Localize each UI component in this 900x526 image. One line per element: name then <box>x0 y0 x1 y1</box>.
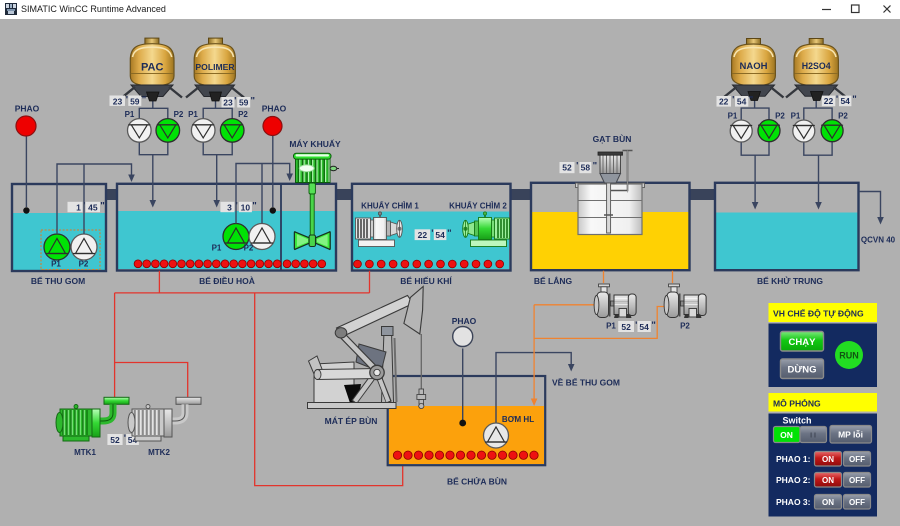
svg-text:Switch: Switch <box>782 416 811 426</box>
svg-text:CHẠY: CHẠY <box>789 337 817 348</box>
svg-text:ON: ON <box>822 498 834 507</box>
svg-text:22: 22 <box>719 97 729 107</box>
svg-text:BỂ LẮNG: BỂ LẮNG <box>534 275 573 286</box>
svg-text:": " <box>447 228 452 239</box>
svg-text:P2: P2 <box>680 322 690 331</box>
svg-text:P1: P1 <box>728 111 738 120</box>
svg-text:P1: P1 <box>212 244 222 253</box>
svg-text:": " <box>251 96 256 107</box>
svg-text:VỀ BỂ THU GOM: VỀ BỂ THU GOM <box>552 377 620 388</box>
svg-text:BỂ ĐIỀU HOÀ: BỂ ĐIỀU HOÀ <box>199 275 255 286</box>
svg-text:': ' <box>635 320 637 331</box>
svg-text:GẠT BÙN: GẠT BÙN <box>593 133 632 144</box>
svg-text:QCVN 40: QCVN 40 <box>861 236 896 245</box>
svg-text:BỂ KHỬ TRUNG: BỂ KHỬ TRUNG <box>757 275 823 286</box>
svg-text:22: 22 <box>824 96 834 106</box>
svg-text:OFF: OFF <box>849 498 865 507</box>
svg-text:PHAO: PHAO <box>262 104 287 114</box>
svg-text:I I: I I <box>810 433 816 440</box>
svg-text:59: 59 <box>130 96 140 106</box>
svg-text:': ' <box>126 94 128 105</box>
svg-text:MTK2: MTK2 <box>148 448 170 457</box>
svg-text:OFF: OFF <box>849 476 865 485</box>
svg-text:": " <box>749 95 754 106</box>
svg-text:54: 54 <box>840 96 850 106</box>
svg-text:': ' <box>836 94 838 105</box>
svg-text:': ' <box>431 228 433 239</box>
svg-text:1: 1 <box>76 203 81 213</box>
svg-text:ON: ON <box>822 455 834 464</box>
svg-text:MÁY KHUẤY: MÁY KHUẤY <box>289 139 341 149</box>
svg-text:ON: ON <box>822 476 834 485</box>
svg-text:OFF: OFF <box>849 455 865 464</box>
svg-text:P2: P2 <box>244 244 254 253</box>
svg-text:MÁT ÉP BÙN: MÁT ÉP BÙN <box>325 415 378 426</box>
svg-text:3: 3 <box>227 203 232 213</box>
svg-text:POLIMER: POLIMER <box>195 62 235 72</box>
svg-text:MÔ PHỎNG: MÔ PHỎNG <box>773 398 821 409</box>
svg-text:54: 54 <box>435 230 445 240</box>
svg-text:': ' <box>732 95 734 106</box>
svg-text:10: 10 <box>241 203 251 213</box>
svg-text:VH CHẾ ĐỘ TỰ ĐỘNG: VH CHẾ ĐỘ TỰ ĐỘNG <box>773 308 864 319</box>
svg-text:MTK1: MTK1 <box>74 448 96 457</box>
svg-text:52: 52 <box>110 435 120 445</box>
svg-text:P2: P2 <box>79 260 89 269</box>
svg-text:RUN: RUN <box>839 351 859 361</box>
svg-text:PHAO: PHAO <box>452 316 477 326</box>
svg-text:23: 23 <box>223 98 233 108</box>
svg-text:54: 54 <box>639 322 649 332</box>
svg-text:PAC: PAC <box>141 62 163 74</box>
svg-text:BƠM HL: BƠM HL <box>502 415 534 424</box>
svg-text:P1: P1 <box>125 110 135 119</box>
svg-text:P1: P1 <box>51 260 61 269</box>
svg-text:P2: P2 <box>174 110 184 119</box>
svg-text:54: 54 <box>737 97 747 107</box>
svg-text:": " <box>142 94 147 105</box>
svg-text:": " <box>852 94 857 105</box>
svg-text:58: 58 <box>581 163 591 173</box>
svg-text:H2SO4: H2SO4 <box>802 61 831 71</box>
svg-text:59: 59 <box>239 98 249 108</box>
svg-text:P2: P2 <box>838 111 848 120</box>
svg-text:BỂ CHỨA BÙN: BỂ CHỨA BÙN <box>447 476 507 487</box>
svg-text:": " <box>593 161 598 172</box>
svg-text:": " <box>100 201 105 212</box>
svg-text:': ' <box>576 161 578 172</box>
svg-text:': ' <box>234 96 236 107</box>
svg-text:23: 23 <box>113 96 123 106</box>
svg-text:KHUẤY CHÌM 2: KHUẤY CHÌM 2 <box>449 201 507 211</box>
svg-text:PHAO 2:: PHAO 2: <box>776 475 811 485</box>
svg-text:P1: P1 <box>791 111 801 120</box>
svg-text:PHAO 3:: PHAO 3: <box>776 497 811 507</box>
svg-text:MP lỗi: MP lỗi <box>838 430 863 440</box>
svg-text:22: 22 <box>418 230 428 240</box>
svg-text:": " <box>651 320 656 331</box>
svg-text:KHUẤY CHÌM 1: KHUẤY CHÌM 1 <box>361 201 419 211</box>
svg-text:PHAO 1:: PHAO 1: <box>776 454 811 464</box>
svg-text:BỂ THU GOM: BỂ THU GOM <box>31 275 85 286</box>
svg-text:DỪNG: DỪNG <box>788 364 817 376</box>
svg-text:PHAO: PHAO <box>15 104 40 114</box>
svg-text:NAOH: NAOH <box>740 61 768 72</box>
svg-text:P2: P2 <box>238 110 248 119</box>
svg-text:": " <box>252 201 257 212</box>
svg-text:52: 52 <box>562 163 572 173</box>
svg-text:P2: P2 <box>775 111 785 120</box>
svg-text:': ' <box>124 433 126 444</box>
svg-text:45: 45 <box>88 203 98 213</box>
svg-text:P1: P1 <box>188 110 198 119</box>
svg-text:BỂ HIẾU KHÍ: BỂ HIẾU KHÍ <box>400 275 452 286</box>
svg-text:52: 52 <box>621 322 631 332</box>
svg-text:ON: ON <box>780 430 793 440</box>
svg-text:P1: P1 <box>606 322 616 331</box>
